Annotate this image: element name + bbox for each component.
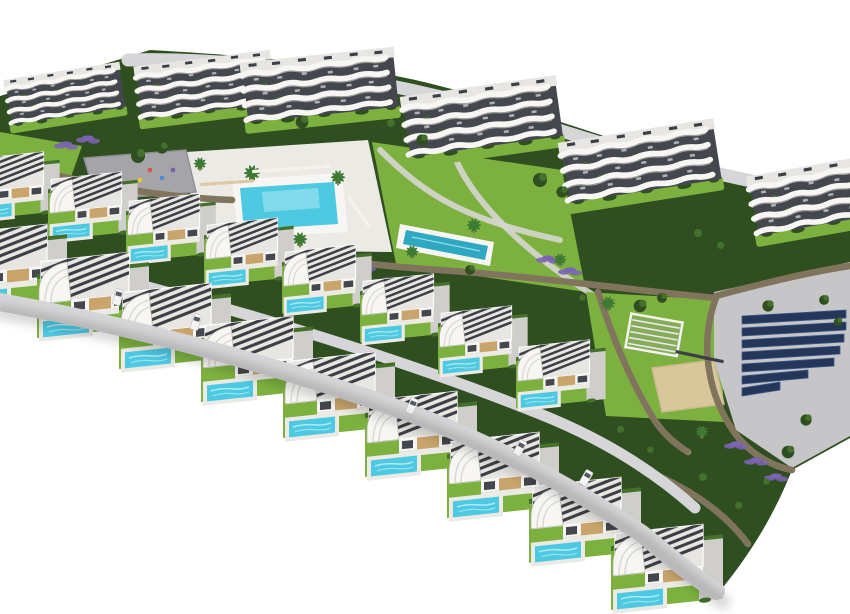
- tree: [634, 300, 647, 313]
- tree: [782, 446, 795, 459]
- tree: [758, 478, 769, 489]
- sun-lounger: [292, 167, 301, 171]
- sun-lounger: [252, 169, 261, 173]
- sun-lounger: [209, 182, 218, 186]
- playground-equipment: [138, 178, 143, 183]
- tree: [688, 229, 702, 243]
- tree: [533, 173, 547, 187]
- apartment-block: [745, 150, 850, 247]
- sun-lounger: [262, 169, 271, 173]
- tree: [819, 295, 829, 305]
- tree: [762, 300, 773, 311]
- tree: [465, 265, 475, 275]
- sun-lounger: [245, 179, 254, 183]
- sun-lounger: [272, 168, 281, 172]
- tree: [800, 414, 811, 425]
- sun-lounger: [312, 165, 321, 169]
- playground-equipment: [171, 168, 176, 173]
- tree: [612, 426, 625, 439]
- playground-equipment: [148, 168, 153, 173]
- tree: [642, 446, 653, 457]
- sun-lounger: [227, 180, 236, 184]
- tree: [834, 318, 842, 326]
- tree: [657, 293, 667, 303]
- sun-lounger: [282, 167, 291, 171]
- sun-lounger: [322, 164, 331, 168]
- sun-lounger: [236, 180, 245, 184]
- tree: [156, 142, 167, 153]
- playground-equipment: [160, 176, 165, 181]
- aerial-development-render: [0, 0, 850, 614]
- tree: [574, 294, 585, 305]
- tree: [712, 242, 725, 255]
- tree: [296, 116, 309, 129]
- render-page: [0, 0, 850, 614]
- tree: [730, 502, 743, 515]
- tree: [416, 134, 427, 145]
- sun-lounger: [302, 166, 311, 170]
- sun-lounger: [218, 181, 227, 185]
- tree: [131, 149, 145, 163]
- sun-lounger: [200, 182, 209, 186]
- tree: [381, 119, 395, 133]
- tree: [556, 186, 567, 197]
- tree: [693, 473, 707, 487]
